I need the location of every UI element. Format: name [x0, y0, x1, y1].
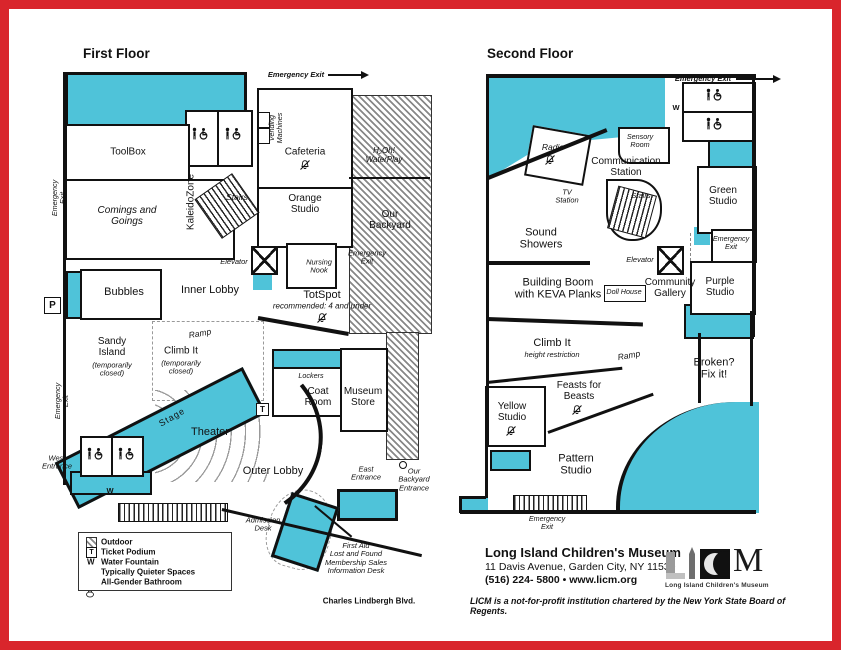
feasts-for-beasts-label: Feasts for Beasts — [557, 380, 601, 402]
outer-lobby-label: Outer Lobby — [243, 465, 304, 477]
quieter-space-icon — [300, 160, 311, 171]
emergency-exit-label-f2-bottom: Emergency Exit — [529, 515, 565, 531]
museum-address: 11 Davis Avenue, Garden City, NY 11530 — [485, 561, 675, 573]
ramp-label-f2: Ramp — [617, 349, 641, 362]
logo-letter-m: M — [733, 542, 763, 580]
nursing-nook-label: Nursing Nook — [306, 259, 332, 276]
teal-yellow-studio-corner — [490, 450, 531, 471]
emergency-exit-label-f2-right: Emergency Exit — [713, 235, 749, 251]
licm-logo: M Long Island Children's Museum — [663, 546, 773, 588]
emergency-exit-arrow-f2 — [736, 78, 774, 80]
elevator-shaft-f2 — [657, 246, 684, 275]
inner-lobby-label: Inner Lobby — [181, 284, 239, 296]
kaleidozone-label: KaleidoZone — [185, 174, 196, 230]
legend-bathroom-label: All-Gender Bathroom — [101, 578, 182, 587]
legend-outdoor-label: Outdoor — [101, 538, 133, 547]
tv-station-label: TV Station — [555, 189, 578, 206]
legend-water-label: Water Fountain — [101, 558, 159, 567]
logo-caption: Long Island Children's Museum — [665, 582, 769, 589]
sensory-room-label: Sensory Room — [627, 133, 653, 149]
left-outer-wall-f1 — [63, 72, 66, 485]
totspot-label: TotSpot — [303, 289, 340, 301]
left-step-wall-v-f2 — [459, 496, 462, 513]
yellow-studio-label: Yellow Studio — [498, 401, 527, 423]
broken-fixit-label: Broken? Fix it! — [694, 357, 735, 382]
museum-map-page: First Floor ToolBox Comings and Goings K — [0, 0, 841, 650]
community-gallery-label: Community Gallery — [645, 277, 696, 299]
museum-phone-web: (516) 224- 5800 • www.licm.org — [485, 574, 637, 586]
bubbles-label: Bubbles — [104, 286, 144, 298]
vending-machines-label: Vending Machines — [268, 113, 284, 144]
right-wall-lower-f2 — [750, 311, 753, 406]
bathroom-icon — [191, 128, 210, 141]
bottom-wall-f2 — [460, 510, 756, 514]
purple-studio-label: Purple Studio — [706, 276, 735, 298]
bathroom-icon — [705, 89, 724, 102]
totspot-note: recommended: 4 and under — [273, 303, 371, 312]
stairs-label-f1: Stairs — [226, 193, 248, 203]
logo-rocket-tip — [689, 547, 695, 554]
communication-station-label: Communication Station — [591, 156, 660, 178]
parking-p-sign: P — [44, 297, 61, 314]
water-fountain-w-f1: W — [106, 487, 113, 495]
admission-desk-label: Admission Desk — [246, 517, 281, 534]
sound-showers-label: Sound Showers — [520, 227, 563, 252]
quieter-space-icon — [545, 155, 556, 166]
museum-store-label: Museum Store — [344, 386, 382, 408]
museum-name: Long Island Children's Museum — [485, 545, 681, 560]
bathroom-icon — [705, 118, 724, 131]
quieter-space-icon — [572, 405, 583, 416]
totspot-angled-wall — [258, 316, 349, 336]
legend-ticket-label: Ticket Podium — [101, 548, 156, 557]
ticket-podium-t: T — [256, 403, 269, 416]
radio-room — [524, 125, 592, 186]
our-backyard-label: Our Backyard — [369, 209, 411, 231]
east-entrance-label: East Entrance — [351, 466, 381, 483]
legend-water-symbol: W — [87, 558, 95, 567]
comings-goings-label: Comings and Goings — [98, 205, 157, 227]
left-lower-wall-f2 — [485, 386, 488, 498]
building-boom-label: Building Boom with KEVA Planks — [515, 277, 602, 302]
backyard-entrance-label: Our Backyard Entrance — [398, 467, 429, 492]
theater-label: Theater — [191, 426, 229, 438]
bathroom-icon — [117, 448, 136, 461]
emergency-exit-label-left-bottom: Emergency Exit — [54, 383, 70, 419]
logo-rocket-i — [689, 554, 695, 579]
pattern-studio-label: Pattern Studio — [558, 453, 593, 478]
cafeteria-label: Cafeteria — [285, 146, 326, 157]
quieter-space-icon — [317, 313, 328, 324]
street-label: Charles Lindbergh Blvd. — [323, 598, 415, 607]
emergency-exit-label-left-top: Emergency Exit — [51, 180, 67, 216]
sandy-island-label: Sandy Island — [98, 336, 126, 358]
logo-moon-square — [700, 549, 730, 579]
climb-it-note-f2: height restriction — [524, 351, 579, 359]
wall-under-building-boom — [487, 317, 643, 326]
west-entrance-label: West Entrance — [42, 455, 72, 472]
emergency-exit-label-right: Emergency Exit — [348, 250, 386, 267]
teal-elevator-lobby — [253, 274, 272, 290]
bathroom-icon — [224, 128, 243, 141]
sandy-island-closed-note: (temporarily closed) — [92, 362, 132, 379]
orange-studio-label: Orange Studio — [288, 193, 321, 215]
elevator-label-f1: Elevator — [220, 258, 248, 266]
wall-above-yellow-studio — [487, 367, 623, 384]
legend-ticket-symbol: T — [86, 547, 97, 558]
climb-it-label-f1: Climb It — [164, 345, 198, 356]
backyard-divider-wall — [349, 177, 430, 179]
legend-quieter-label: Typically Quieter Spaces — [101, 568, 195, 577]
radio-label: Radio — [542, 143, 564, 153]
bathroom-icon — [86, 448, 105, 461]
toolbox-label: ToolBox — [110, 146, 146, 157]
quieter-space-icon — [506, 426, 517, 437]
h2oh-waterplay-label: H₂Oh! WaterPlay — [366, 147, 403, 165]
teal-east-vestibule — [337, 489, 398, 521]
elevator-shaft-f1 — [251, 246, 278, 275]
first-aid-label: First Aid Lost and Found Membership Sale… — [325, 542, 387, 576]
our-backyard-strip — [386, 332, 419, 460]
logo-letter-l-foot — [666, 573, 685, 579]
stairs-label-f2: Stairs — [631, 192, 650, 200]
climb-it-label-f2: Climb It — [533, 337, 570, 349]
right-wall-f2 — [752, 74, 755, 337]
water-fountain-w-f2: W — [672, 104, 679, 112]
climb-it-closed-note: (temporarily closed) — [161, 360, 201, 377]
emergency-exit-label-f2-top: Emergency Exit — [675, 75, 731, 83]
emergency-exit-arrow — [328, 74, 362, 76]
disclaimer-text: LICM is a not-for-profit institution cha… — [470, 596, 800, 616]
emergency-exit-label-top: Emergency Exit — [268, 71, 324, 79]
second-floor-title: Second Floor — [487, 46, 573, 61]
backyard-entrance-marker — [399, 461, 407, 469]
lockers-label: Lockers — [298, 372, 323, 380]
teal-bottom-right-f2 — [616, 402, 759, 513]
doll-house-label: Doll House — [606, 288, 641, 296]
green-studio-label: Green Studio — [709, 185, 737, 207]
left-step-wall-f2 — [459, 496, 486, 499]
left-wall-f2 — [486, 74, 489, 396]
elevator-label-f2: Elevator — [626, 256, 654, 264]
first-floor-title: First Floor — [83, 46, 150, 61]
wall-under-sound-showers — [487, 261, 590, 265]
coat-room-label: Coat Room — [305, 386, 332, 408]
